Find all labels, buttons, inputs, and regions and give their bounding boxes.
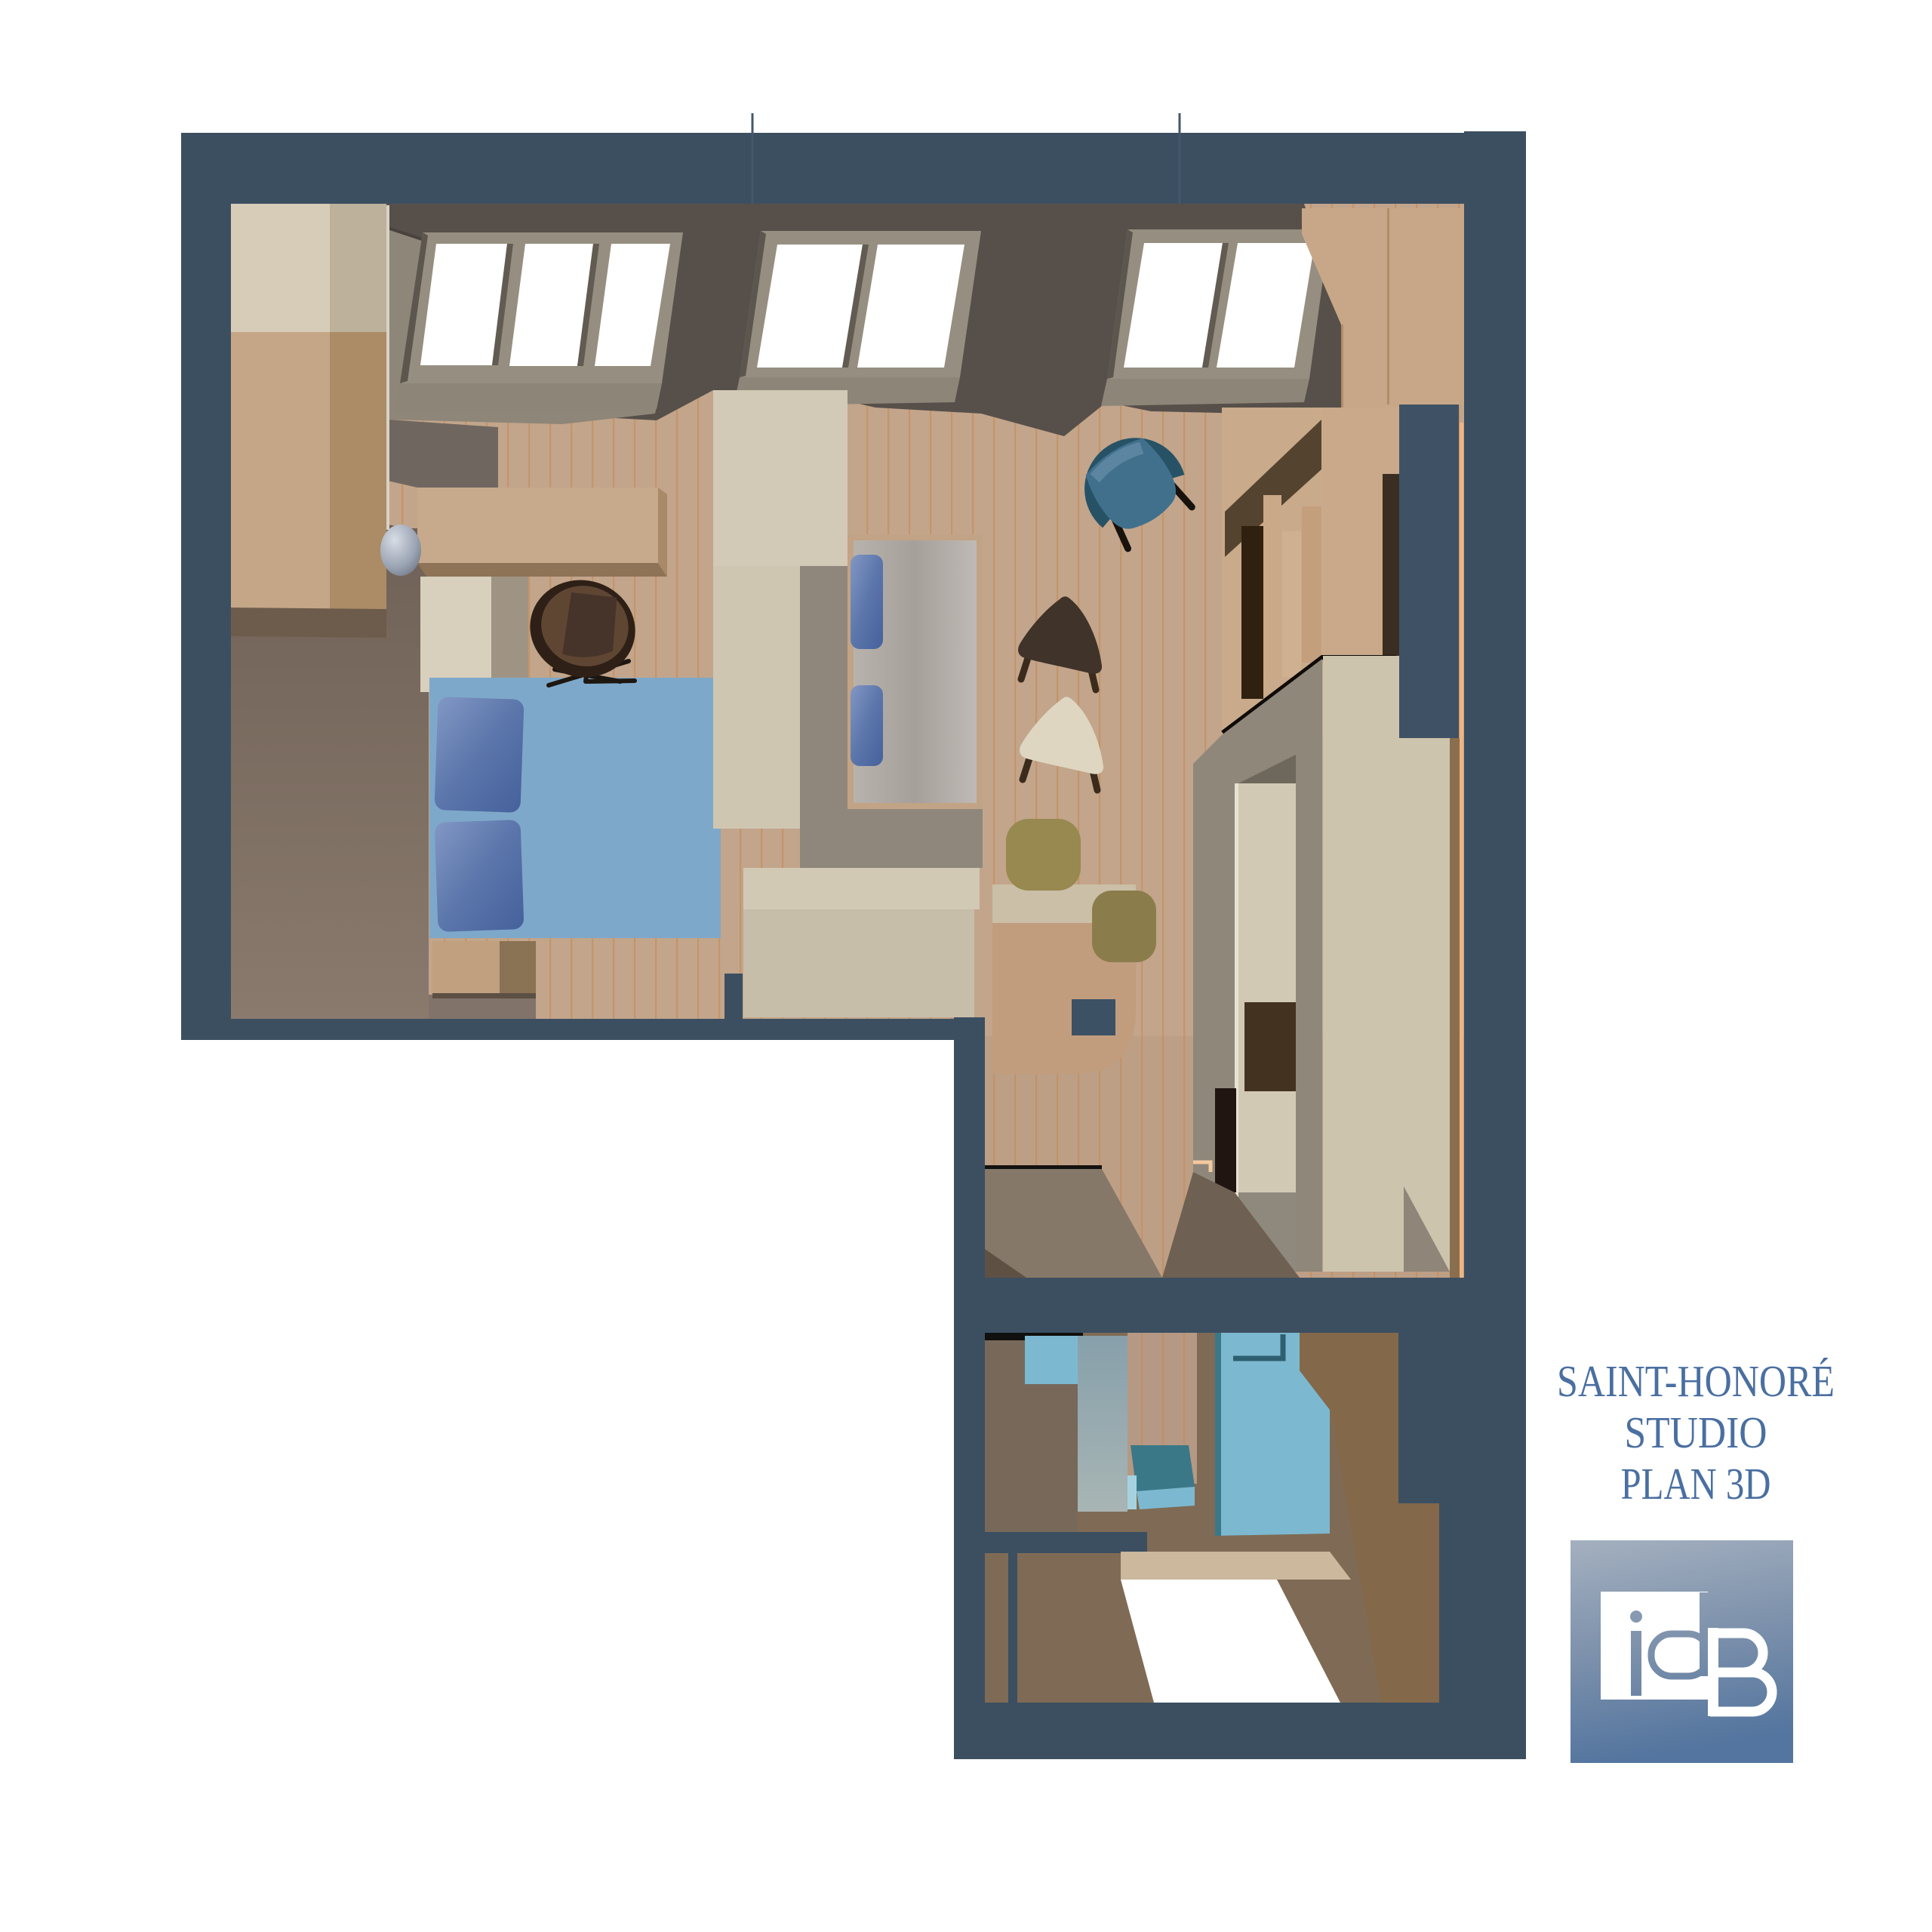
- svg-text:STUDIO: STUDIO: [1625, 1407, 1767, 1457]
- svg-text:SAINT-HONORÉ: SAINT-HONORÉ: [1557, 1356, 1835, 1406]
- svg-text:PLAN 3D: PLAN 3D: [1621, 1459, 1771, 1509]
